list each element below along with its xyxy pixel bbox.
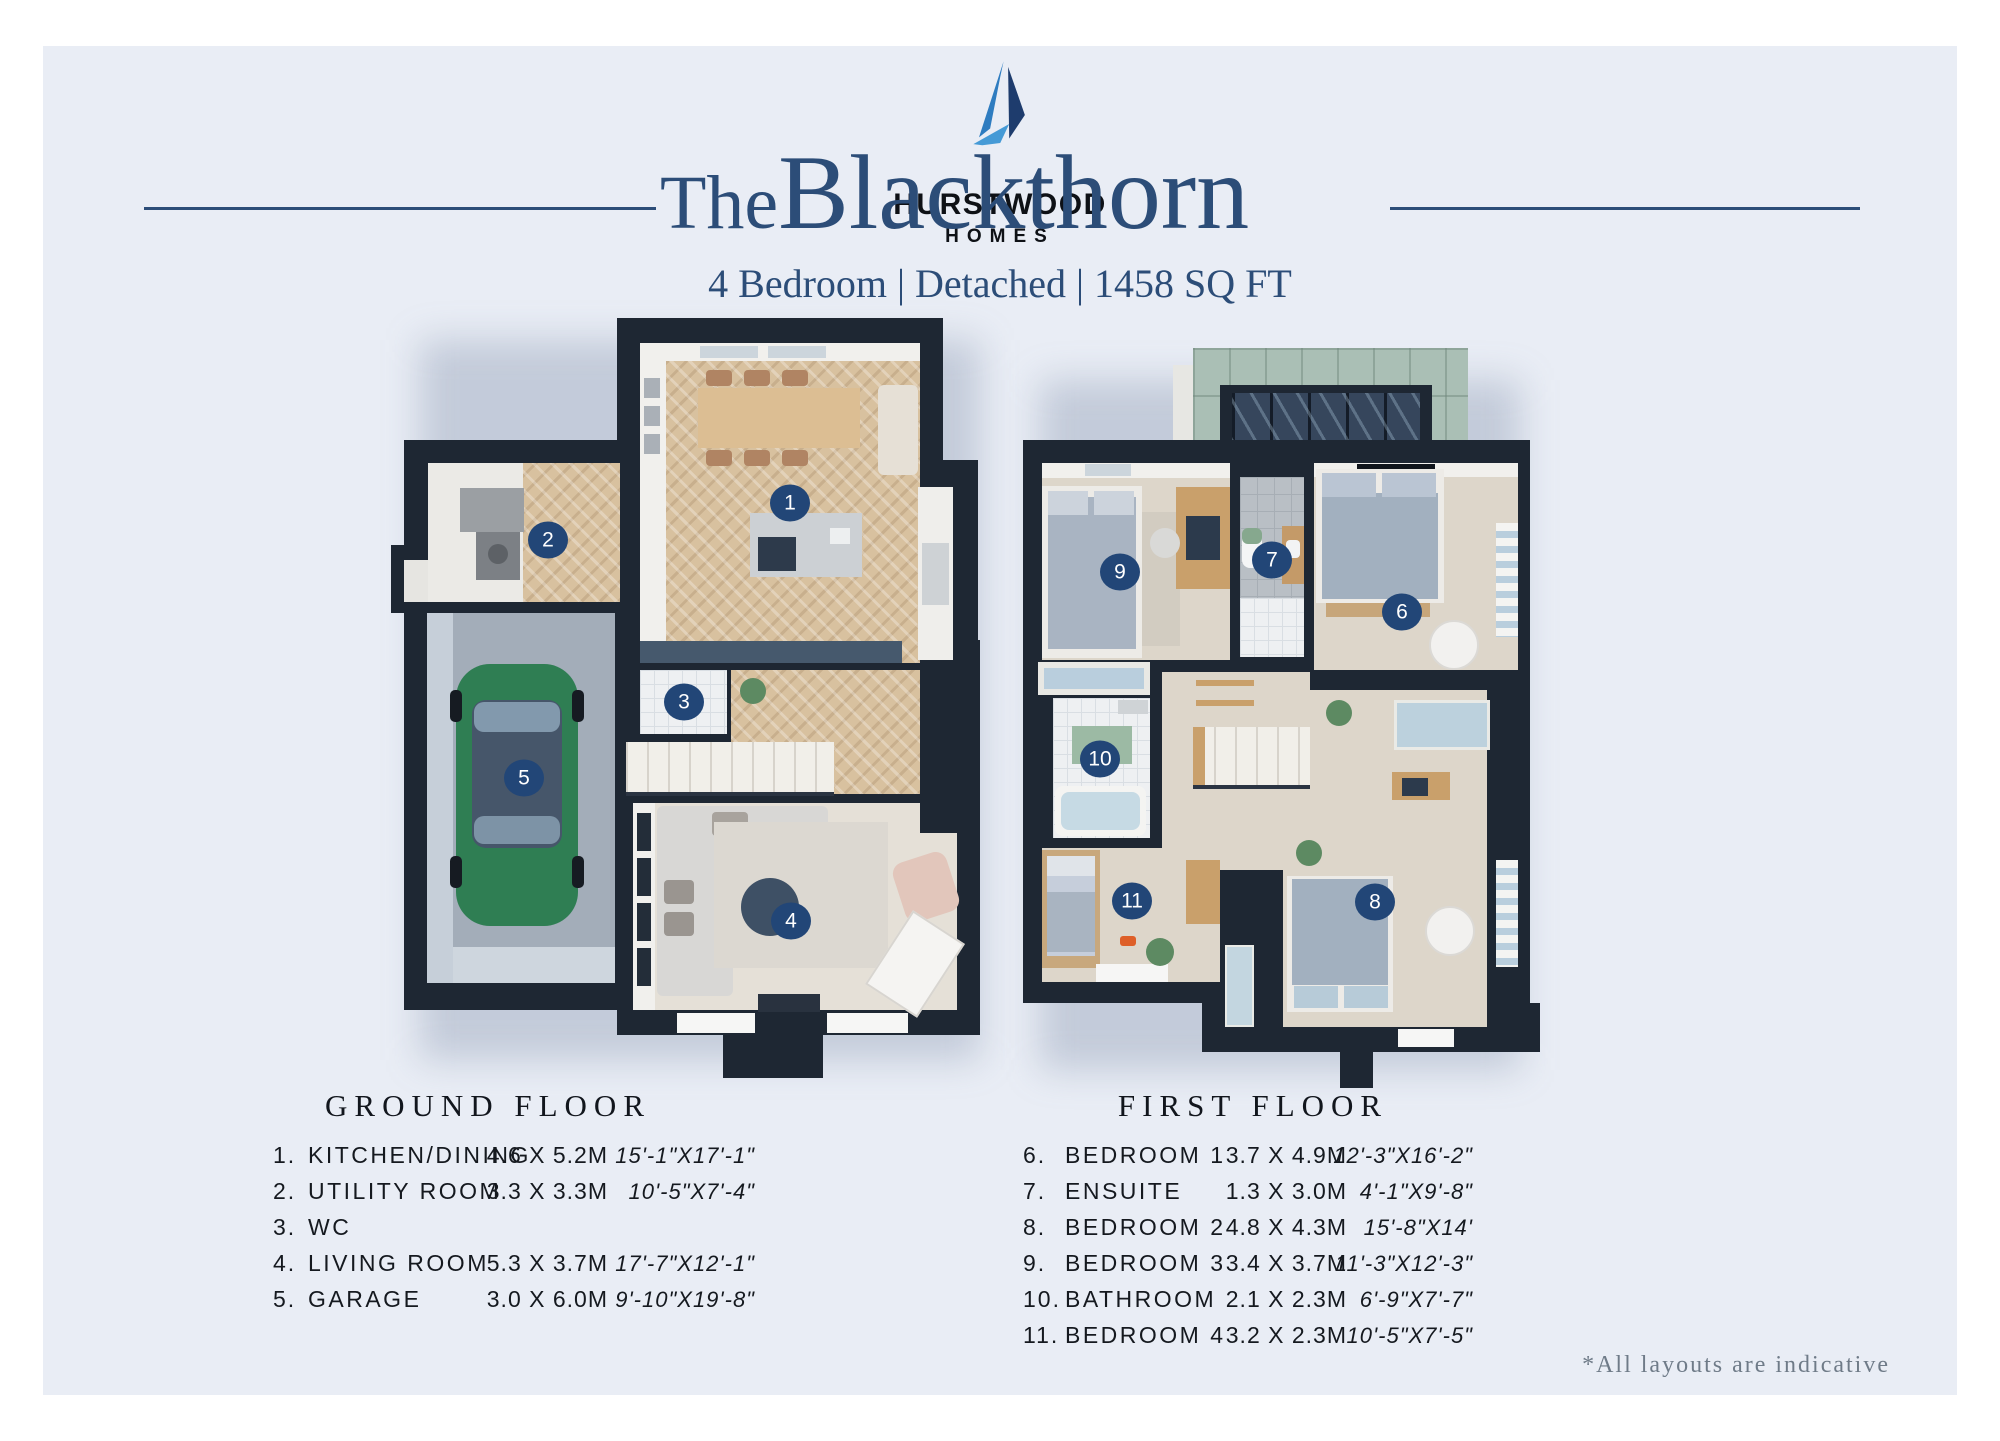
plant — [1326, 700, 1352, 726]
legend-row: 7. ENSUITE 1.3 X 3.0M 4'-1"X9'-8" — [1023, 1178, 1473, 1214]
room-imperial: 15'-8"X14' — [1364, 1215, 1473, 1241]
legend-row: 11. BEDROOM 4 3.2 X 2.3M 10'-5"X7'-5" — [1023, 1322, 1473, 1358]
legend-row: 1. KITCHEN/DINING 4.6 X 5.2M 15'-1"X17'-… — [273, 1142, 755, 1178]
marker-5: 5 — [504, 760, 544, 797]
window — [1496, 860, 1518, 967]
legend-row: 6. BEDROOM 1 3.7 X 4.9M 12'-3"X16'-2" — [1023, 1142, 1473, 1178]
wall-picture — [644, 406, 660, 426]
dining-chair — [744, 450, 770, 466]
dining-chair — [782, 450, 808, 466]
blanket — [1047, 892, 1095, 952]
window-sill — [1096, 964, 1168, 982]
legend-row: 10. BATHROOM 2.1 X 2.3M 6'-9"X7'-7" — [1023, 1286, 1473, 1322]
chimney — [1340, 1052, 1373, 1088]
legend-row: 9. BEDROOM 3 3.4 X 3.7M 11'-3"X12'-3" — [1023, 1250, 1473, 1286]
car-wheel — [450, 690, 462, 722]
brochure-page: HURSTWOOD HOMES TheBlackthorn 4 Bedroom … — [0, 0, 2000, 1441]
ground-floor-heading: GROUND FLOOR — [273, 1088, 703, 1124]
subtitle: 4 Bedroom | Detached | 1458 SQ FT — [0, 260, 2000, 307]
marker-4: 4 — [771, 903, 811, 940]
car-rear-window — [474, 816, 560, 844]
room-number: 8. — [1023, 1214, 1046, 1241]
lounge-chair — [1429, 620, 1479, 670]
living-notch — [920, 803, 957, 833]
toilet-lid — [1242, 528, 1262, 544]
room-imperial: 11'-3"X12'-3" — [1335, 1251, 1473, 1277]
washer-door — [488, 544, 508, 564]
marker-11: 11 — [1112, 883, 1152, 920]
skylight — [700, 346, 758, 358]
room-imperial: 9'-10"X19'-8" — [615, 1287, 755, 1313]
chimney — [723, 1035, 823, 1078]
ground-floor-legend: 1. KITCHEN/DINING 4.6 X 5.2M 15'-1"X17'-… — [273, 1142, 755, 1322]
shelf — [1196, 700, 1254, 706]
room-imperial: 4'-1"X9'-8" — [1360, 1179, 1473, 1205]
window-frame — [637, 903, 651, 941]
pillow — [1294, 986, 1338, 1008]
plant — [740, 678, 766, 704]
pillow — [1322, 473, 1376, 497]
window-frame — [637, 948, 651, 986]
room-name: WC — [308, 1214, 351, 1241]
pillow — [1344, 986, 1388, 1008]
room-imperial: 10'-5"X7'-4" — [628, 1179, 755, 1205]
title-name: Blackthorn — [778, 134, 1249, 251]
kitchen-sideboard — [640, 641, 902, 663]
dining-table — [698, 388, 860, 448]
marker-6: 6 — [1382, 594, 1422, 631]
skylight — [768, 346, 826, 358]
shower — [1240, 598, 1304, 657]
room-imperial: 15'-1"X17'-1" — [615, 1143, 755, 1169]
room-number: 10. — [1023, 1286, 1061, 1313]
room-number: 11. — [1023, 1322, 1059, 1349]
hob — [758, 537, 796, 571]
legend-row: 2. UTILITY ROOM 3.3 X 3.3M 10'-5"X7'-4" — [273, 1178, 755, 1214]
room-metric: 3.0 X 6.0M — [487, 1286, 608, 1313]
window-sill — [827, 1013, 908, 1033]
utility-counter — [460, 488, 524, 532]
first-floor-heading: FIRST FLOOR — [1023, 1088, 1483, 1124]
room-number: 7. — [1023, 1178, 1046, 1205]
legend-row: 3. WC — [273, 1214, 755, 1250]
room-name: BATHROOM — [1065, 1286, 1216, 1313]
fireplace — [758, 994, 820, 1012]
car-wheel — [572, 856, 584, 888]
window-sill — [1398, 1029, 1454, 1047]
marker-3: 3 — [664, 684, 704, 721]
toy — [1120, 936, 1136, 946]
window-glass — [1044, 668, 1144, 689]
shelf — [1196, 680, 1254, 686]
rug — [714, 822, 888, 968]
room-number: 1. — [273, 1142, 296, 1169]
wall — [391, 545, 404, 613]
window-frame — [637, 813, 651, 851]
cushion — [664, 880, 694, 904]
wall-picture — [644, 434, 660, 454]
room-name: UTILITY ROOM — [308, 1178, 501, 1205]
car-wheel — [450, 856, 462, 888]
footnote: *All layouts are indicative — [1582, 1352, 1890, 1379]
bathtub-basin — [1061, 792, 1140, 830]
kitchen-sofa — [878, 385, 918, 475]
room-number: 9. — [1023, 1250, 1046, 1277]
utility-nook — [404, 560, 428, 602]
roof-glazing — [1232, 393, 1420, 443]
pillow — [1382, 473, 1436, 497]
car-windshield — [474, 702, 560, 732]
pillow — [1048, 491, 1088, 515]
airing-cupboard — [1225, 945, 1254, 1027]
plant — [1146, 938, 1174, 966]
legend-row: 8. BEDROOM 2 4.8 X 4.3M 15'-8"X14' — [1023, 1214, 1473, 1250]
room-imperial: 17'-7"X12'-1" — [615, 1251, 755, 1277]
monitor — [1402, 778, 1428, 796]
dining-chair — [782, 370, 808, 386]
room-number: 3. — [273, 1214, 296, 1241]
room-metric: 3.2 X 2.3M — [1226, 1322, 1347, 1349]
room-metric: 2.1 X 2.3M — [1226, 1286, 1347, 1313]
title-prefix: The — [660, 161, 778, 245]
marker-7: 7 — [1252, 542, 1292, 579]
monitor — [1186, 516, 1220, 560]
garage-door-band — [453, 947, 615, 983]
marker-8: 8 — [1355, 884, 1395, 921]
room-metric: 4.6 X 5.2M — [487, 1142, 608, 1169]
window-frame — [637, 858, 651, 896]
marker-9: 9 — [1100, 554, 1140, 591]
built-in-wardrobe — [1394, 700, 1490, 750]
stair-rail — [1193, 727, 1205, 787]
pillow — [1047, 856, 1095, 876]
room-name: ENSUITE — [1065, 1178, 1182, 1205]
marker-2: 2 — [528, 522, 568, 559]
room-imperial: 12'-3"X16'-2" — [1333, 1143, 1473, 1169]
wall-picture — [644, 378, 660, 398]
room-metric: 5.3 X 3.7M — [487, 1250, 608, 1277]
duvet — [1322, 493, 1438, 599]
page-title: TheBlackthorn — [660, 140, 1249, 246]
car-wheel — [572, 690, 584, 722]
room-name: BEDROOM 2 — [1065, 1214, 1226, 1241]
room-name: BEDROOM 4 — [1065, 1322, 1226, 1349]
room-metric: 3.4 X 3.7M — [1226, 1250, 1347, 1277]
marker-10: 10 — [1080, 741, 1120, 778]
legend-row: 5. GARAGE 3.0 X 6.0M 9'-10"X19'-8" — [273, 1286, 755, 1322]
pantry-shelf — [922, 543, 949, 605]
first-floor-legend: 6. BEDROOM 1 3.7 X 4.9M 12'-3"X16'-2" 7.… — [1023, 1142, 1473, 1358]
legend-row: 4. LIVING ROOM 5.3 X 3.7M 17'-7"X12'-1" — [273, 1250, 755, 1286]
title-rule-right — [1390, 207, 1860, 210]
plant — [1296, 840, 1322, 866]
cushion — [664, 912, 694, 936]
room-metric: 4.8 X 4.3M — [1226, 1214, 1347, 1241]
room-metric: 3.3 X 3.3M — [487, 1178, 608, 1205]
staircase — [626, 742, 834, 794]
room-imperial: 6'-9"X7'-7" — [1360, 1287, 1473, 1313]
bedroom3-top-wall — [1042, 463, 1230, 478]
stair-banister — [626, 792, 834, 796]
room-number: 5. — [273, 1286, 296, 1313]
room-number: 2. — [273, 1178, 296, 1205]
pillow — [1094, 491, 1134, 515]
room-name: GARAGE — [308, 1286, 421, 1313]
room-number: 4. — [273, 1250, 296, 1277]
room-name: BEDROOM 3 — [1065, 1250, 1226, 1277]
room-name: BEDROOM 1 — [1065, 1142, 1226, 1169]
wardrobe — [1186, 860, 1220, 924]
room-metric: 1.3 X 3.0M — [1226, 1178, 1347, 1205]
island-sink — [830, 528, 850, 544]
dining-chair — [706, 370, 732, 386]
room-name: LIVING ROOM — [308, 1250, 489, 1277]
sink — [1118, 700, 1148, 714]
window-sill — [677, 1013, 755, 1033]
garage-wall-band — [427, 613, 453, 983]
title-rule-left — [144, 207, 656, 210]
room-metric: 3.7 X 4.9M — [1226, 1142, 1347, 1169]
room-number: 6. — [1023, 1142, 1046, 1169]
dining-chair — [744, 370, 770, 386]
desk-chair — [1150, 528, 1180, 558]
lounge-chair — [1425, 906, 1475, 956]
skylight — [1085, 464, 1131, 476]
roof-side — [1173, 365, 1193, 443]
marker-1: 1 — [770, 485, 810, 522]
window — [1496, 523, 1518, 637]
room-imperial: 10'-5"X7'-5" — [1346, 1323, 1473, 1349]
dining-chair — [706, 450, 732, 466]
